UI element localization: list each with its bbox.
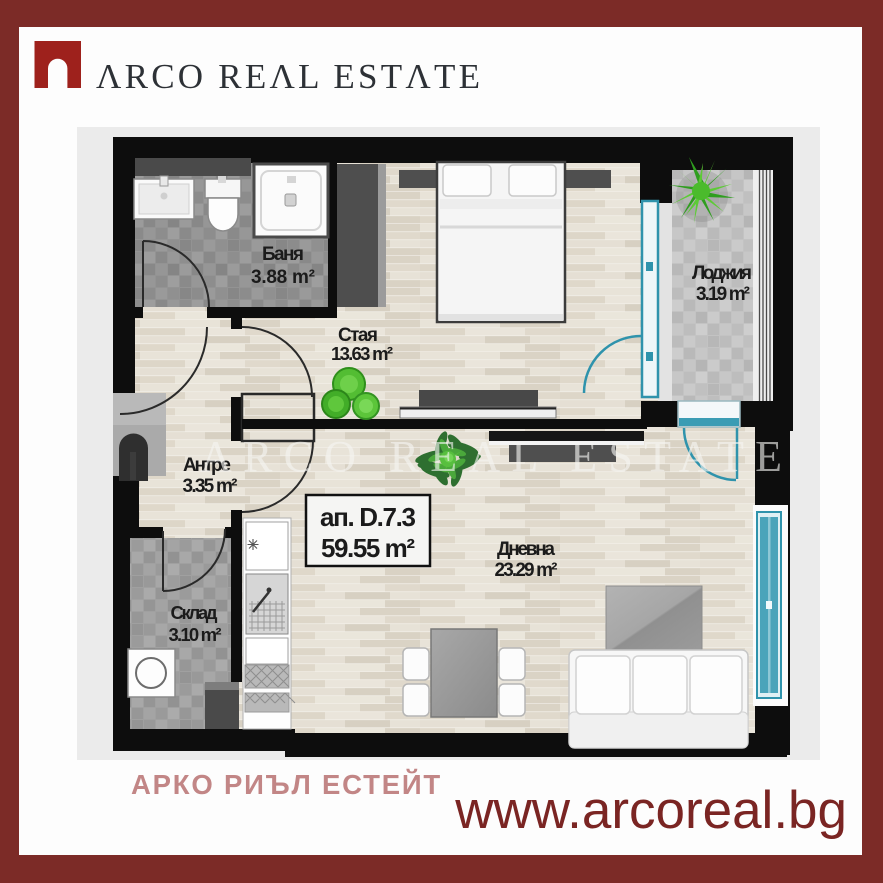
svg-text:23.29 m²: 23.29 m² (495, 560, 558, 581)
svg-text:3.19 m²: 3.19 m² (696, 284, 750, 305)
svg-text:Склад: Склад (171, 602, 218, 623)
svg-text:АРКО РИЪЛ ЕСТЕЙТ: АРКО РИЪЛ ЕСТЕЙТ (131, 769, 442, 800)
svg-text:59.55 m²: 59.55 m² (321, 533, 415, 563)
svg-text:Дневна: Дневна (497, 539, 555, 560)
svg-text:ап. D.7.3: ап. D.7.3 (320, 502, 416, 532)
svg-text:Лоджия: Лоджия (692, 263, 752, 284)
svg-text:ΛRCO REΛL ESTΛTE: ΛRCO REΛL ESTΛTE (96, 57, 480, 96)
svg-text:Баня: Баня (262, 244, 304, 265)
svg-text:3.10 m²: 3.10 m² (169, 624, 222, 645)
svg-text:ARCO REAL ESTATE: ARCO REAL ESTATE (200, 432, 792, 481)
svg-text:3.88 m²: 3.88 m² (251, 267, 315, 288)
svg-text:13.63 m²: 13.63 m² (331, 343, 393, 364)
svg-text:www.arcoreal.bg: www.arcoreal.bg (454, 781, 847, 840)
